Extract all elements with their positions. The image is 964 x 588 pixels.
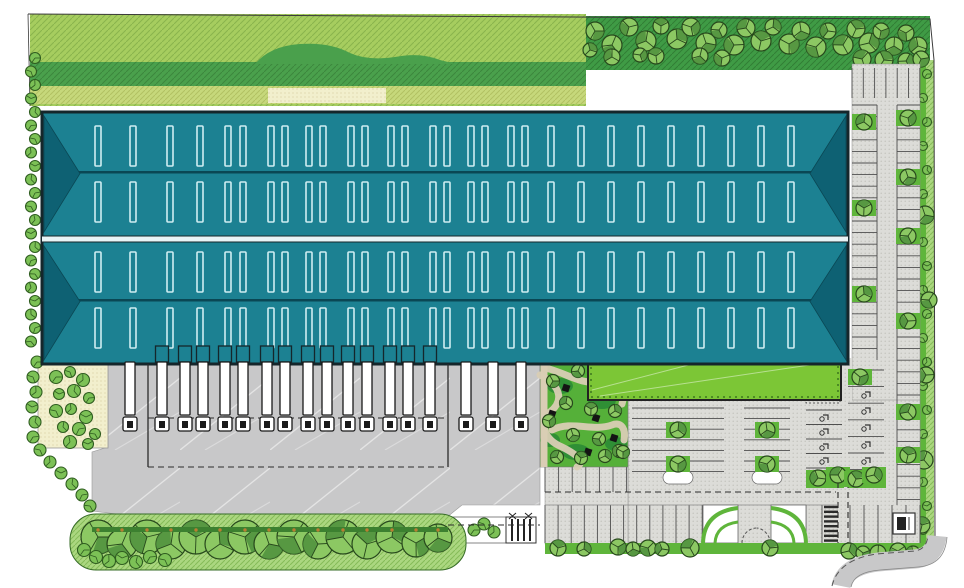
bush-icon [923, 358, 932, 367]
docked-truck [196, 362, 210, 431]
bush-icon [30, 296, 41, 307]
bush-icon [66, 478, 78, 490]
site-plan-drawing [0, 0, 964, 588]
bush-branch [923, 238, 924, 242]
bush-icon [30, 188, 41, 199]
garden-tree [559, 397, 572, 410]
bush-icon [26, 401, 38, 413]
dock-canopy [197, 346, 210, 362]
bush-icon [26, 228, 37, 239]
trunk-dot [120, 528, 123, 531]
hedge-tree [577, 542, 591, 556]
tree-icon [633, 48, 647, 62]
south-parking-lot-west [545, 460, 628, 544]
north-grass-dark-band [30, 62, 586, 88]
bike-rack-slab [506, 517, 536, 543]
tree-icon [711, 22, 727, 38]
dock-canopy [342, 346, 355, 362]
warehouse-building [42, 112, 848, 364]
tree-branch [734, 45, 744, 46]
bike-rack-bar [511, 519, 513, 541]
bush-icon [30, 386, 42, 398]
parking-tree [810, 470, 826, 486]
parking-tree [830, 467, 846, 483]
bush-branch [150, 557, 156, 558]
cab-window [222, 421, 228, 428]
bush-icon [30, 80, 41, 91]
hedge-tree [626, 542, 640, 556]
docked-truck [514, 362, 528, 431]
bush-icon [26, 66, 37, 77]
parking-tree [856, 114, 872, 130]
parking-tree [900, 404, 916, 420]
trailer [343, 362, 353, 415]
bush-icon [923, 262, 932, 271]
trailer [280, 362, 290, 415]
parking-tree [759, 422, 775, 438]
tree-icon [604, 49, 620, 65]
bush-icon [84, 393, 95, 404]
bush-icon [103, 555, 116, 568]
bush-icon [34, 444, 46, 456]
garden-tree [567, 429, 580, 442]
bike-rack-bar [517, 519, 519, 541]
bush-icon [144, 551, 157, 564]
tree-icon [873, 23, 889, 39]
garden-tree [609, 404, 622, 417]
gravel-strip [268, 88, 386, 103]
docked-truck [459, 362, 473, 431]
cab-window [200, 421, 206, 428]
parking-tree [670, 456, 686, 472]
bush-icon [26, 120, 37, 131]
trunk-dot [169, 528, 172, 531]
garden-tree [575, 451, 588, 464]
bike-rack-bar [523, 519, 525, 541]
bush-icon [80, 411, 93, 424]
docked-truck [301, 362, 315, 431]
cab-window [127, 421, 133, 428]
cab-window [305, 421, 311, 428]
hedge-tree [681, 539, 699, 557]
bush-icon [26, 201, 37, 212]
bush-icon [26, 174, 37, 185]
garden-tree [599, 450, 612, 463]
cab-window [324, 421, 330, 428]
bush-icon [26, 93, 37, 104]
cab-window [282, 421, 288, 428]
bush-icon [130, 556, 143, 569]
docked-truck [260, 362, 274, 431]
tree-icon [921, 292, 937, 308]
garden-tree [617, 446, 630, 459]
tree-branch [900, 235, 908, 236]
bush-icon [78, 544, 91, 557]
bush-icon [76, 489, 88, 501]
tree-icon [898, 25, 914, 41]
trunk-dot [194, 528, 197, 531]
trailer [385, 362, 395, 415]
tree-branch [894, 37, 895, 46]
tree-branch [195, 537, 196, 554]
bush-icon [65, 367, 76, 378]
bush-icon [44, 456, 56, 468]
docked-truck [486, 362, 500, 431]
bush-icon [30, 269, 41, 280]
bush-icon [30, 161, 41, 172]
trunk-dot [243, 528, 246, 531]
cab-window [264, 421, 270, 428]
garden-tree [547, 375, 560, 388]
parking-tree [670, 422, 686, 438]
trunk-dot [316, 528, 319, 531]
bush-icon [26, 309, 37, 320]
dock-canopy [402, 346, 415, 362]
trunk-dot [292, 528, 295, 531]
roof-ridge [78, 171, 812, 174]
tree-icon [620, 18, 638, 36]
trailer [220, 362, 230, 415]
tree-icon [583, 43, 597, 57]
docked-trailers [123, 362, 528, 431]
docked-truck [401, 362, 415, 431]
hedge-tree [841, 543, 857, 559]
trailer [322, 362, 332, 415]
parking-tree [866, 467, 882, 483]
tree-icon [918, 367, 934, 383]
tree-icon [737, 19, 755, 37]
tree-icon [806, 37, 826, 57]
tree-icon [792, 22, 810, 40]
docked-truck [155, 362, 169, 431]
bush-icon [27, 431, 39, 443]
dock-canopy [156, 346, 169, 362]
utility-cabinet [893, 513, 915, 534]
tree-icon [586, 22, 604, 40]
hedge-tree [610, 539, 626, 555]
garden-tree [585, 403, 598, 416]
tree-icon [692, 48, 708, 64]
trailer [180, 362, 190, 415]
parking-tree [900, 228, 916, 244]
docked-truck [383, 362, 397, 431]
tree-icon [765, 19, 781, 35]
bush-icon [488, 526, 500, 538]
parking-island [752, 471, 782, 484]
bush-icon [66, 404, 77, 415]
trunk-dot [436, 528, 439, 531]
trailer [403, 362, 413, 415]
bush-icon [30, 323, 41, 334]
docked-truck [278, 362, 292, 431]
docked-truck [341, 362, 355, 431]
bush-icon [923, 166, 932, 175]
parking-tree [900, 110, 916, 126]
bike-rack-bar [529, 519, 531, 541]
bush-icon [90, 429, 101, 440]
utility-cabinet-icon [897, 517, 906, 530]
bush-icon [923, 310, 932, 319]
bush-icon [90, 551, 103, 564]
roof-ridge [78, 299, 812, 302]
tree-icon [648, 48, 664, 64]
bush-icon [27, 371, 39, 383]
cab-window [427, 421, 433, 428]
bush-icon [923, 406, 932, 415]
bush-icon [55, 467, 67, 479]
bush-icon [923, 118, 932, 127]
trunk-dot [414, 528, 417, 531]
bush-icon [159, 554, 172, 567]
tree-icon [653, 18, 669, 34]
docked-truck [218, 362, 232, 431]
trunk-dot [267, 528, 270, 531]
roof-valley-strip [42, 236, 848, 242]
dock-canopy [261, 346, 274, 362]
bush-icon [30, 242, 41, 253]
garden-tree [593, 433, 606, 446]
parking-tree [856, 286, 872, 302]
docked-truck [360, 362, 374, 431]
trunk-dot [390, 528, 393, 531]
bush-icon [478, 518, 490, 530]
cab-window [159, 421, 165, 428]
bush-icon [84, 500, 96, 512]
bush-icon [30, 107, 41, 118]
tree-icon [714, 50, 730, 66]
bush-icon [50, 371, 63, 384]
cab-window [405, 421, 411, 428]
bush-icon [83, 439, 94, 450]
hedge-tree [762, 540, 778, 556]
hedge-tree [550, 540, 566, 556]
parking-tree [759, 456, 775, 472]
docked-truck [236, 362, 250, 431]
trunk-dot [365, 528, 368, 531]
cab-window [364, 421, 370, 428]
bush-icon [30, 134, 41, 145]
parking-tree [900, 169, 916, 185]
dock-canopy [384, 346, 397, 362]
dock-canopy [424, 346, 437, 362]
site-plan-page [0, 0, 964, 588]
dock-canopy [237, 346, 250, 362]
bush-icon [54, 389, 65, 400]
trailer [303, 362, 313, 415]
tree-branch [921, 299, 929, 300]
parking-tree [900, 447, 916, 463]
trunk-dot [145, 528, 148, 531]
trailer [362, 362, 372, 415]
trailer [157, 362, 167, 415]
tree-icon [833, 35, 853, 55]
bush-icon [923, 70, 932, 79]
bush-icon [30, 215, 41, 226]
bush-icon [29, 416, 41, 428]
docked-truck [320, 362, 334, 431]
docked-truck [423, 362, 437, 431]
tree-branch [593, 439, 600, 440]
tree-branch [614, 405, 615, 412]
cab-window [490, 421, 496, 428]
trailer [425, 362, 435, 415]
dock-canopy [302, 346, 315, 362]
bush-icon [30, 53, 41, 64]
trailer [125, 362, 135, 415]
parking-tree [848, 471, 864, 487]
bush-icon [58, 422, 69, 433]
docked-truck [178, 362, 192, 431]
bike-rack [506, 513, 536, 543]
bush-icon [26, 147, 37, 158]
tree-branch [906, 33, 907, 41]
bush-icon [26, 336, 37, 347]
trailer [238, 362, 248, 415]
tree-icon [682, 18, 700, 36]
cab-window [387, 421, 393, 428]
cab-window [182, 421, 188, 428]
parking-island [663, 471, 693, 484]
cab-window [240, 421, 246, 428]
cab-window [345, 421, 351, 428]
trailer [198, 362, 208, 415]
parking-tree [900, 313, 916, 329]
trunk-dot [218, 528, 221, 531]
trunk-dot [96, 528, 99, 531]
cab-window [518, 421, 524, 428]
parking-tree [852, 369, 868, 385]
trailer [516, 362, 526, 415]
bush-icon [73, 423, 86, 436]
hedge-tree [640, 540, 656, 556]
trailer [488, 362, 498, 415]
bush-icon [26, 255, 37, 266]
bush-icon [68, 385, 81, 398]
tree-branch [711, 29, 719, 30]
tree-icon [751, 31, 771, 51]
dock-canopy [219, 346, 232, 362]
bush-icon [26, 282, 37, 293]
trunk-dot [341, 528, 344, 531]
bush-icon [77, 374, 90, 387]
dock-canopy [361, 346, 374, 362]
parking-tree [856, 200, 872, 216]
garden-tree [572, 365, 585, 378]
cab-window [463, 421, 469, 428]
dock-canopy [279, 346, 292, 362]
dock-canopy [179, 346, 192, 362]
garden-tree [543, 415, 556, 428]
trailer [262, 362, 272, 415]
bush-icon [116, 552, 129, 565]
bush-icon [64, 436, 77, 449]
bush-icon [50, 405, 63, 418]
hedge-tree [655, 542, 669, 556]
bush-branch [33, 437, 38, 438]
bush-icon [923, 502, 932, 511]
dock-canopy [321, 346, 334, 362]
docked-truck [123, 362, 137, 431]
garden-tree [551, 451, 564, 464]
tree-icon [820, 23, 836, 39]
trailer [461, 362, 471, 415]
